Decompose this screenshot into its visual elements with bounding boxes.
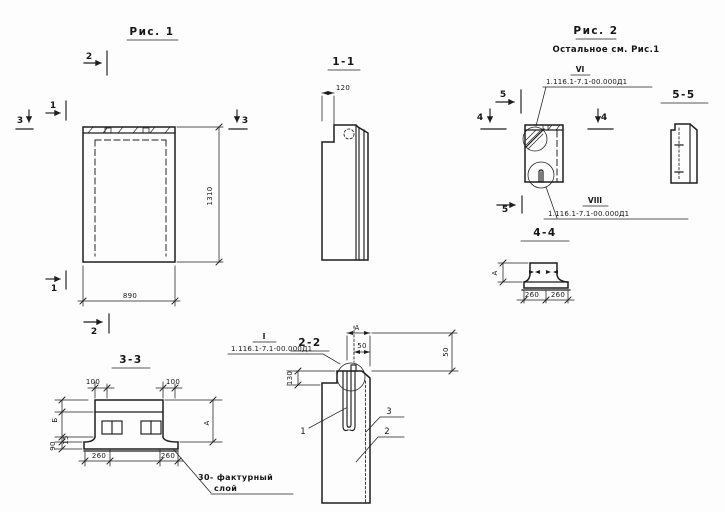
svg-text:слой: слой xyxy=(214,484,237,493)
section-1-1-title: 1-1 xyxy=(332,56,355,68)
fig1-dim-height-lines xyxy=(177,127,223,262)
fig2-cut-marker-left-4: 4 xyxy=(477,109,506,129)
svg-text:VIII: VIII xyxy=(588,196,602,205)
s33-dim-100-left: 100 xyxy=(86,378,100,386)
s33-dim-b: Б xyxy=(51,417,59,422)
svg-text:30- фактурный: 30- фактурный xyxy=(198,473,273,482)
fig1-hidden-contour xyxy=(95,140,166,256)
s55-profile-outline xyxy=(671,124,697,183)
svg-text:5: 5 xyxy=(502,205,508,215)
svg-text:1.116.1-7.1-00.000Д1: 1.116.1-7.1-00.000Д1 xyxy=(548,210,629,218)
s22-part-2: 2 xyxy=(384,427,389,437)
fig1-cut-marker-right-3: 3 xyxy=(229,110,248,129)
svg-text:1.116.1-7.1-00.000Д1: 1.116.1-7.1-00.000Д1 xyxy=(231,345,312,353)
s22-callout-i: I 1.116.1-7.1-00.000Д1 xyxy=(228,332,340,364)
s44-dim-260-right: 260 xyxy=(551,291,565,299)
fig1-dim-height: 1310 xyxy=(206,186,214,205)
svg-text:1: 1 xyxy=(50,101,56,111)
s33-dim-260-left: 260 xyxy=(92,452,106,460)
s22-dim-130: 130 xyxy=(286,371,294,385)
s11-dim-lines xyxy=(322,93,334,124)
fig1-panel-outline xyxy=(83,127,175,262)
svg-text:2: 2 xyxy=(91,327,97,337)
s22-part-1: 1 xyxy=(300,427,305,437)
fig2-corner-cut xyxy=(526,129,544,147)
s22-dim-50-top: 50 xyxy=(357,342,367,350)
fig1-cut-marker-bottom-2: 2 xyxy=(84,314,109,337)
s22-profile-outline xyxy=(322,371,370,503)
s11-hidden-loop xyxy=(344,129,354,139)
section-5-5: 5-5 xyxy=(661,89,708,183)
fig1-cut-marker-bottom-1: 1 xyxy=(46,271,66,294)
s33-profile-outline xyxy=(84,400,178,449)
s33-dim-100-right: 100 xyxy=(166,378,180,386)
svg-text:3: 3 xyxy=(17,116,23,126)
svg-text:I: I xyxy=(263,332,266,341)
fig1-dim-width-lines xyxy=(78,266,180,306)
svg-text:5: 5 xyxy=(500,90,506,100)
svg-text:4: 4 xyxy=(601,113,607,123)
technical-drawing-svg: Рис. 1 1310 890 2 1 3 xyxy=(0,0,725,512)
section-5-5-title: 5-5 xyxy=(672,89,695,101)
fig2-cut-marker-bottom-5: 5 xyxy=(497,196,522,215)
s22-lifting-loop-wires xyxy=(343,372,355,431)
fig1-view: Рис. 1 1310 890 2 1 3 xyxy=(16,26,248,337)
s22-part-3: 3 xyxy=(386,407,391,417)
s33-dim-90: 90 xyxy=(49,441,57,451)
s11-layer-lines xyxy=(356,126,364,260)
s44-dim-a: А xyxy=(491,270,499,275)
fig2-callout-vi: VI 1.116.1-7.1-00.000Д1 xyxy=(536,65,652,126)
s33-inner-lines xyxy=(84,412,178,451)
s33-dim-260-right: 260 xyxy=(161,452,175,460)
callout-shelf-leader xyxy=(228,354,340,364)
svg-text:1: 1 xyxy=(51,284,57,294)
part-1-leader xyxy=(309,408,346,428)
fig1-cut-marker-top-2: 2 xyxy=(84,51,107,75)
s44-dim-a-lines xyxy=(498,263,528,282)
section-1-1: 1-1 120 xyxy=(322,56,368,260)
section-3-3: 3-3 100 100 260 260 Б 15 90 А 30- фактур… xyxy=(49,354,293,494)
s22-dim-a: А xyxy=(354,324,359,332)
fig1-anchor-mark-right xyxy=(143,128,149,133)
fig2-title: Рис. 2 xyxy=(573,25,618,37)
s33-dim-15: 15 xyxy=(62,435,70,445)
s44-profile-outline xyxy=(524,263,568,288)
section-4-4: 4-4 260 260 А xyxy=(491,227,574,303)
svg-text:4: 4 xyxy=(477,113,483,123)
s22-part-labels: 1 3 2 xyxy=(300,407,404,462)
part-2-leader xyxy=(356,437,404,462)
s22-dim-50-right: 50 xyxy=(442,347,450,357)
s33-note-textured-layer: 30- фактурный слой xyxy=(174,450,293,494)
svg-text:1.116.1-7.1-00.000Д1: 1.116.1-7.1-00.000Д1 xyxy=(546,78,627,86)
fig2-bottom-anchor xyxy=(539,170,543,182)
fig1-cut-marker-left-1: 1 xyxy=(46,101,66,120)
s11-dim-arrows xyxy=(322,91,334,95)
fig1-cut-marker-left-3: 3 xyxy=(16,110,33,129)
s33-dim-a-lines xyxy=(165,400,222,442)
s33-dim-a: А xyxy=(203,420,211,425)
fig1-title: Рис. 1 xyxy=(129,26,174,38)
fig2-cut-marker-top-5: 5 xyxy=(496,90,521,113)
fig2-subtitle: Остальное см. Рис.1 xyxy=(552,45,659,55)
section-3-3-title: 3-3 xyxy=(119,354,142,366)
s22-anchor-stub xyxy=(351,365,356,371)
fig1-dim-width: 890 xyxy=(123,292,137,300)
s44-anchor-arrows xyxy=(529,270,558,274)
fig1-band-hatch xyxy=(88,127,170,133)
fig2-view: Рис. 2 Остальное см. Рис.1 VI 1.116.1-7.… xyxy=(477,25,688,219)
callout-shelf-leader xyxy=(536,87,652,126)
svg-text:VI: VI xyxy=(576,65,585,74)
fig2-callout-viii: VIII 1.116.1-7.1-00.000Д1 xyxy=(544,187,688,219)
svg-text:3: 3 xyxy=(242,116,248,126)
drawing-sheet: Рис. 1 1310 890 2 1 3 xyxy=(0,0,725,512)
section-4-4-title: 4-4 xyxy=(533,227,556,239)
svg-text:2: 2 xyxy=(86,52,92,62)
s11-dim-120: 120 xyxy=(336,84,350,92)
s44-base-lines xyxy=(522,282,570,290)
s44-dim-260-left: 260 xyxy=(525,291,539,299)
fig1-anchor-mark-left xyxy=(105,128,111,133)
s11-profile-outline xyxy=(322,125,368,260)
note-leader xyxy=(174,450,211,493)
fig2-cut-marker-right-4: 4 xyxy=(588,109,613,129)
